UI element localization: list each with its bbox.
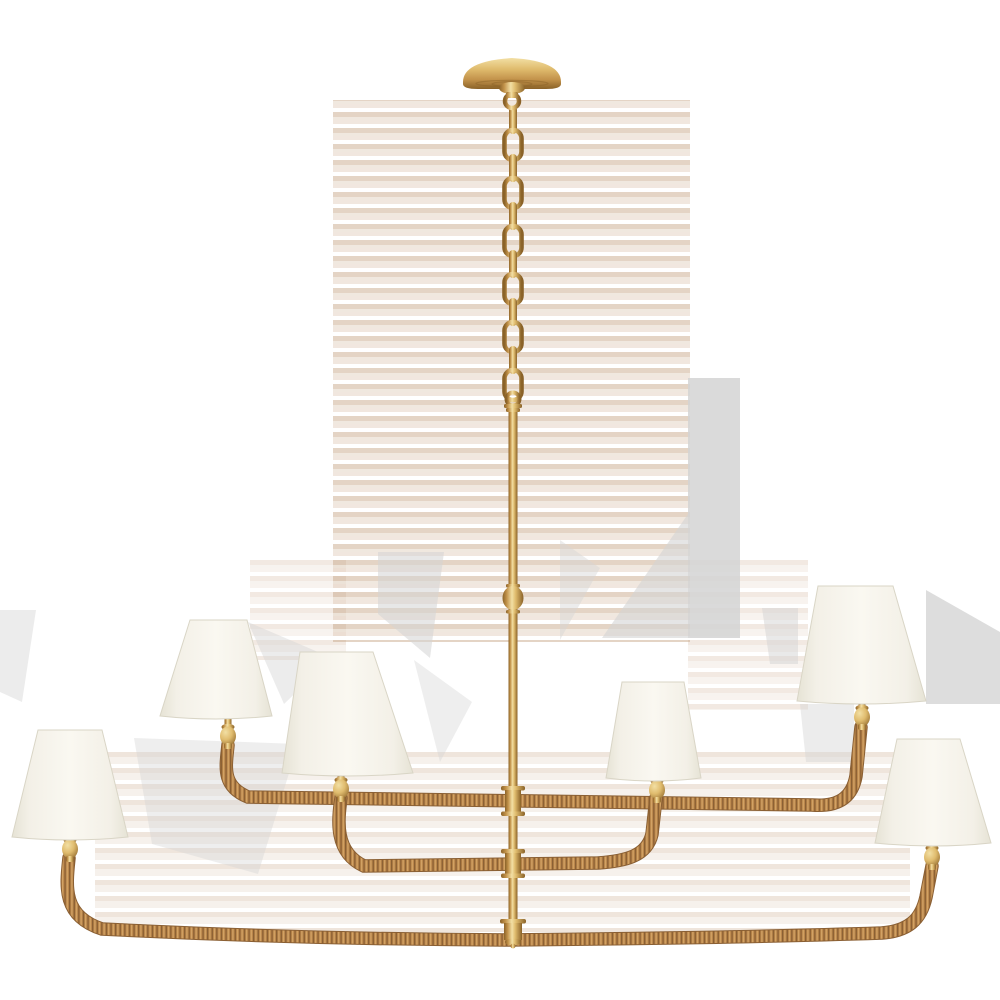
artifact-shadow-polygon xyxy=(414,660,472,762)
chandelier-illustration xyxy=(0,0,1000,1000)
stem-top-collar xyxy=(504,404,522,408)
artifact-shadow-polygon xyxy=(378,552,444,658)
shade-right-upper xyxy=(797,586,926,704)
artifact-shadow-polygon xyxy=(0,610,36,702)
product-image xyxy=(0,0,1000,1000)
artifact-shadow-polygon xyxy=(926,590,1000,704)
artifact-shadow-polygon xyxy=(800,704,854,762)
knob-collar xyxy=(506,610,520,614)
stem-top-collar xyxy=(506,408,520,412)
shade-far-left xyxy=(12,730,128,840)
artifact-shadow-polygon xyxy=(688,378,740,638)
stem-knob xyxy=(503,586,524,610)
shade-center-right xyxy=(606,682,701,781)
shade-center-left xyxy=(282,652,413,776)
